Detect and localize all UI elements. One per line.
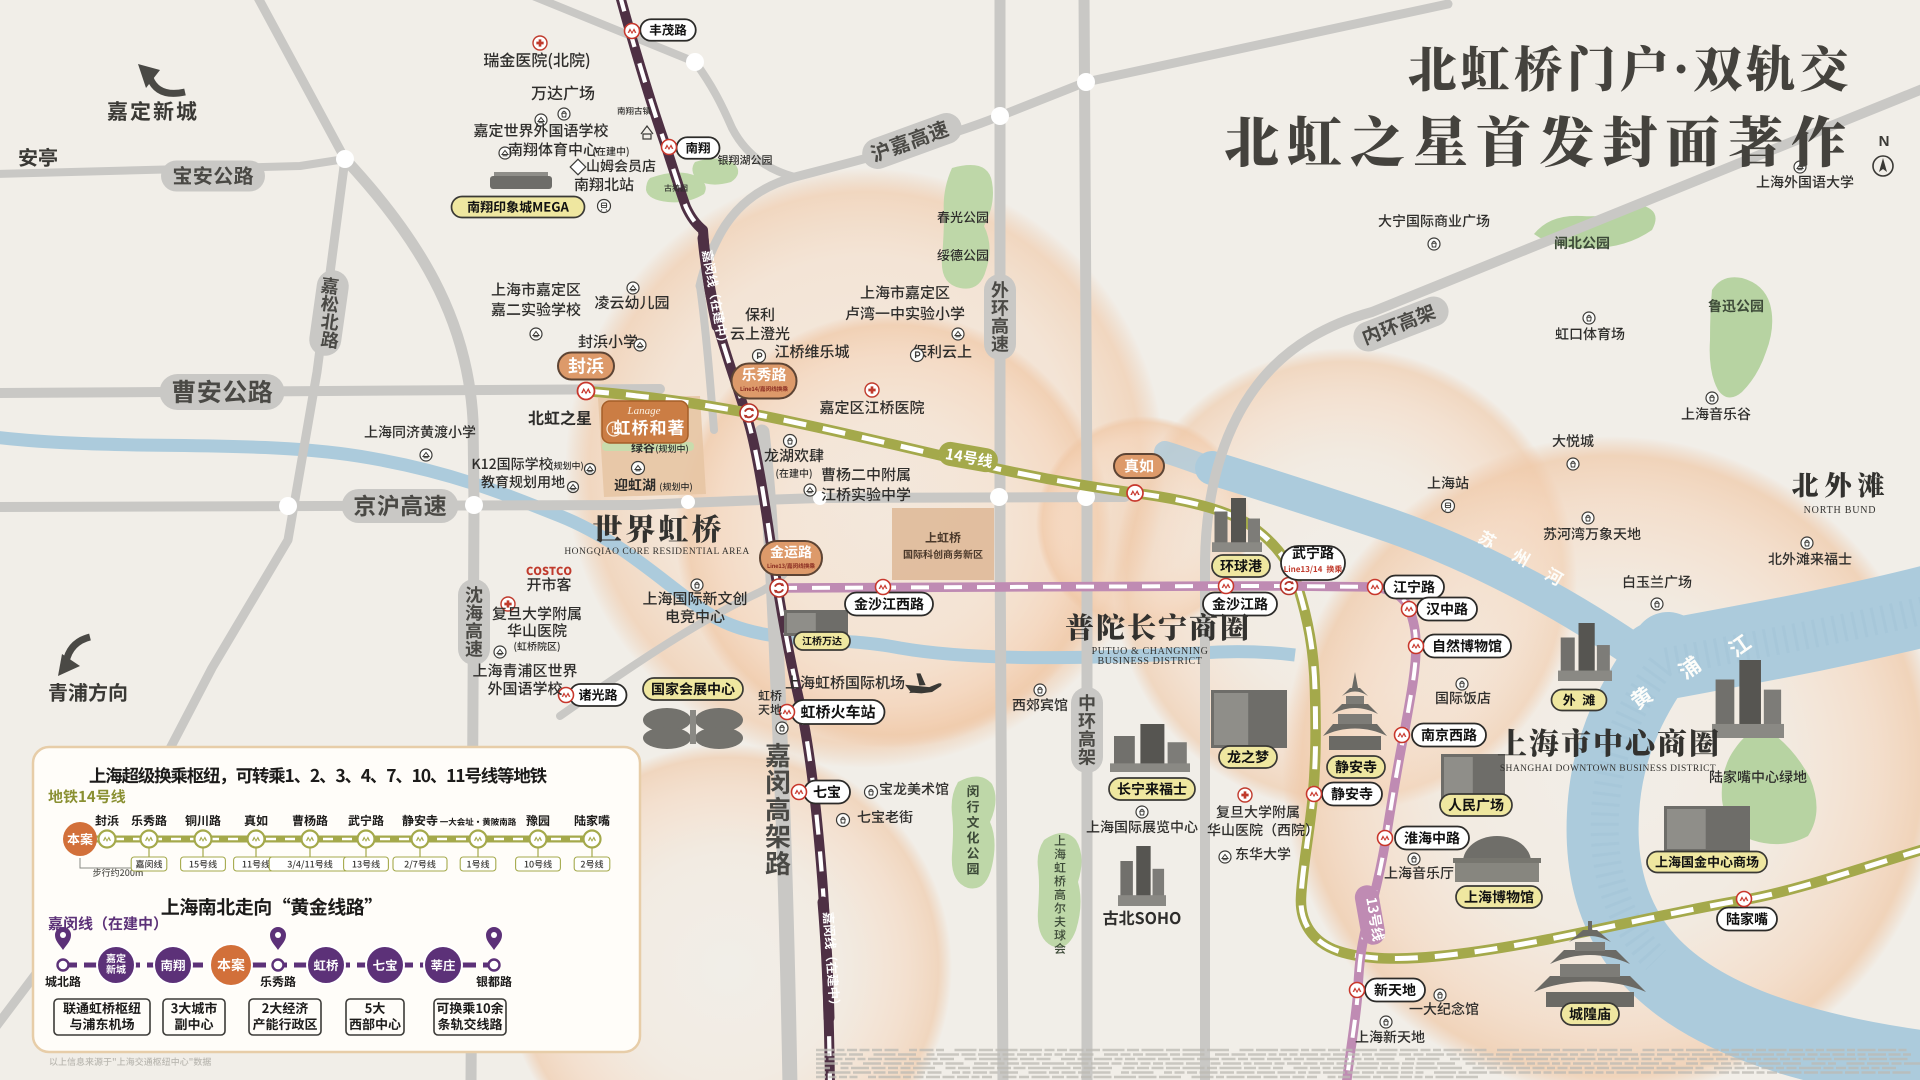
svg-text:HONGQIAO CORE RESIDENTIAL AREA: HONGQIAO CORE RESIDENTIAL AREA [564, 547, 749, 557]
svg-text:SHANGHAI DOWNTOWN BUSINESS DIS: SHANGHAI DOWNTOWN BUSINESS DISTRICT [1500, 764, 1716, 774]
svg-text:Lanage: Lanage [627, 405, 661, 417]
svg-text:BUSINESS DISTRICT: BUSINESS DISTRICT [1098, 656, 1203, 667]
svg-text:N: N [1879, 133, 1890, 150]
svg-text:L: L [611, 425, 617, 435]
svg-text:NORTH BUND: NORTH BUND [1804, 505, 1877, 516]
